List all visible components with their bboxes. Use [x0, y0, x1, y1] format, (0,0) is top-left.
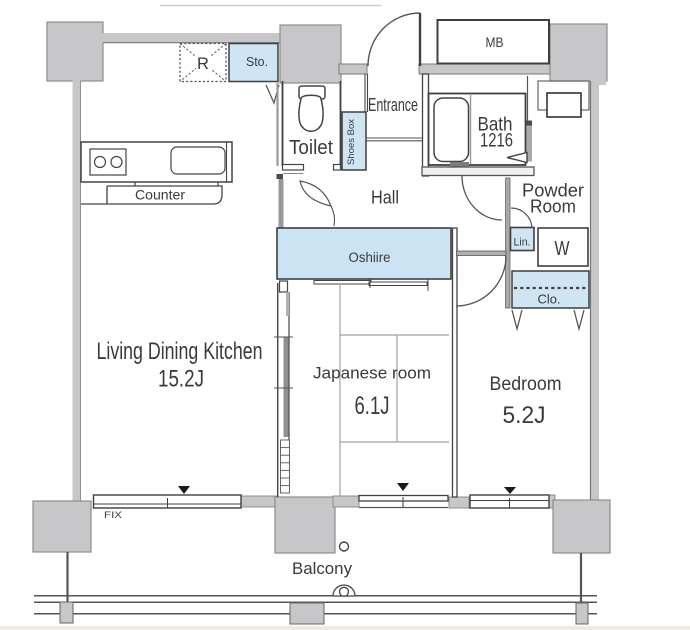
- svg-text:Room: Room: [530, 196, 576, 217]
- svg-text:5.2J: 5.2J: [503, 402, 546, 429]
- svg-text:Lin.: Lin.: [514, 237, 531, 249]
- svg-text:Oshiire: Oshiire: [349, 250, 391, 265]
- svg-text:R: R: [197, 55, 209, 73]
- svg-text:1216: 1216: [480, 131, 513, 152]
- svg-text:Toilet: Toilet: [289, 137, 333, 159]
- svg-text:15.2J: 15.2J: [158, 366, 204, 393]
- svg-text:W: W: [555, 238, 570, 260]
- svg-text:Balcony: Balcony: [292, 559, 352, 578]
- svg-text:Sto.: Sto.: [246, 54, 268, 69]
- svg-text:Bedroom: Bedroom: [490, 373, 562, 395]
- svg-text:Counter: Counter: [135, 187, 185, 203]
- svg-text:MB: MB: [486, 35, 504, 50]
- svg-text:Entrance: Entrance: [368, 94, 418, 115]
- svg-text:Clo.: Clo.: [538, 293, 561, 307]
- svg-text:Living Dining Kitchen: Living Dining Kitchen: [97, 338, 263, 365]
- svg-text:Japanese room: Japanese room: [313, 364, 431, 383]
- svg-text:6.1J: 6.1J: [355, 392, 390, 420]
- svg-text:Shoes Box: Shoes Box: [346, 119, 357, 165]
- svg-text:Hall: Hall: [371, 188, 399, 208]
- svg-text:FIX: FIX: [104, 510, 123, 521]
